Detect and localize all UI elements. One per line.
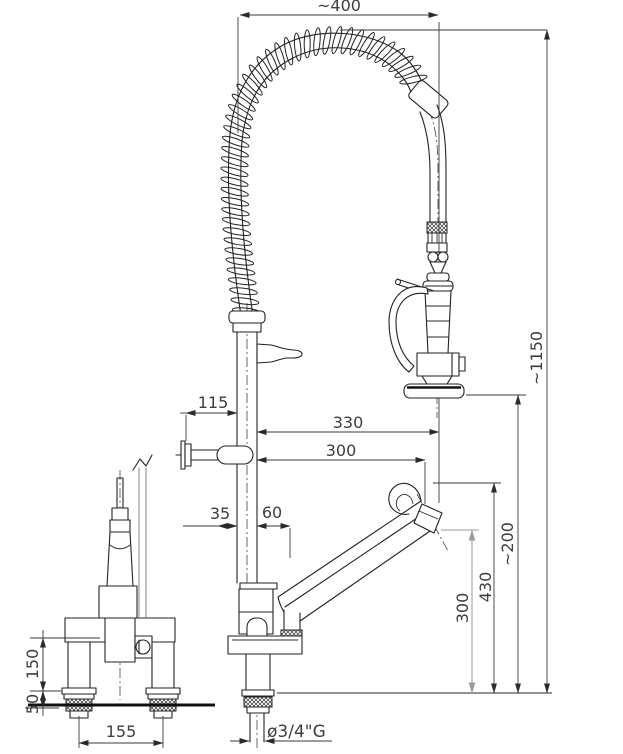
spray-face	[404, 384, 464, 398]
main-view	[176, 26, 552, 742]
dim-spout-outlet-height: 300	[441, 530, 479, 693]
side-port	[135, 636, 152, 658]
dim-label-bracket-offset: 115	[198, 393, 229, 412]
center-column	[105, 618, 135, 662]
dim-spout-top-height: 430	[433, 483, 501, 693]
dim-label-head-clearance: ~200	[498, 522, 517, 566]
dim-label-spout-outlet-height: 300	[453, 593, 472, 624]
pre-rinse-faucet-drawing: ~400 ~1150 115 330 300	[0, 0, 623, 754]
hose-fitting	[407, 79, 449, 120]
dim-hole-spacing: 155	[79, 716, 163, 748]
spring-coil	[220, 26, 428, 316]
side-view	[28, 455, 215, 718]
grip	[425, 291, 451, 353]
side-body-block	[99, 586, 137, 618]
dim-connection-thread: ø3/4"G	[230, 722, 332, 742]
dim-label-reach-outer: 330	[333, 413, 364, 432]
spring-hose	[220, 26, 428, 316]
dim-label-spout-top-height: 430	[476, 572, 495, 603]
dim-bracket-offset: 115	[180, 393, 237, 441]
spray-holder-lever	[257, 344, 302, 363]
spout-hook	[389, 483, 421, 514]
break-symbol	[133, 455, 152, 470]
dim-reach-inner: 300	[257, 441, 425, 504]
dim-label-side-body-height: 150	[23, 649, 42, 680]
right-leg	[152, 642, 174, 688]
dim-head-clearance: ~200	[466, 395, 526, 693]
dim-total-height: ~1150	[527, 30, 547, 693]
dim-offset-right: 60	[257, 503, 290, 558]
deck-flange	[228, 636, 302, 654]
spray-gun	[389, 222, 465, 398]
dim-label-reach-inner: 300	[326, 441, 357, 460]
dim-reach-outer: 330	[257, 413, 439, 432]
riser-pipe-side	[139, 468, 146, 617]
dim-offset-left: 35	[183, 504, 237, 526]
dim-label-deck-thickness: 50	[23, 694, 42, 714]
dim-label-offset-right: 60	[262, 503, 282, 522]
wall-bracket	[176, 441, 253, 469]
swing-spout	[278, 483, 442, 638]
dim-label-offset-left: 35	[210, 504, 230, 523]
left-leg	[68, 642, 90, 688]
valve-body	[417, 353, 459, 376]
dim-label-connection-thread: ø3/4"G	[267, 722, 326, 742]
technical-drawing-page: ~400 ~1150 115 330 300	[0, 0, 623, 754]
dim-label-total-height: ~1150	[527, 331, 546, 385]
dim-label-hole-spacing: 155	[106, 722, 137, 741]
dim-label-top-width: ~400	[317, 0, 361, 15]
